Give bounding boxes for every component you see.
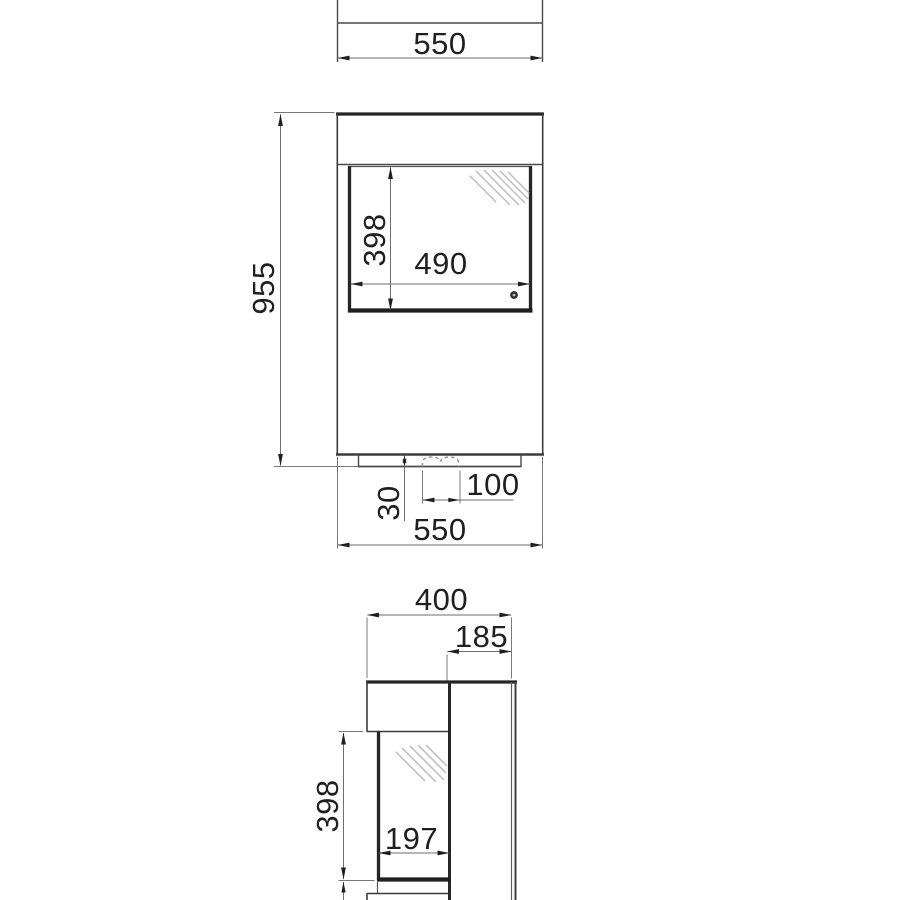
dim-label-rear-depth: 185 bbox=[455, 619, 508, 654]
dimension-recess-width: 100 bbox=[423, 467, 520, 504]
dimension-cutoff-bottom bbox=[341, 882, 345, 900]
door-lock-screw bbox=[510, 291, 518, 299]
recess-arrow-right bbox=[448, 498, 460, 502]
drawing-canvas: 550 bbox=[0, 0, 900, 900]
glass-reflection-hatch bbox=[470, 170, 529, 205]
dimension-overall-height: 955 bbox=[246, 113, 358, 467]
side-glass-door bbox=[377, 732, 451, 881]
dim-label-depth: 400 bbox=[415, 582, 468, 617]
dimension-front-glass-height: 398 bbox=[357, 168, 392, 311]
front-plinth bbox=[358, 455, 522, 467]
dim-label-plinth-height: 30 bbox=[371, 485, 406, 520]
dimension-plinth-height: 30 bbox=[371, 456, 407, 522]
side-base bbox=[367, 882, 449, 900]
front-view bbox=[336, 113, 544, 467]
side-view bbox=[366, 681, 517, 900]
dim-label-recess-width: 100 bbox=[466, 467, 519, 502]
dimension-side-glass-height: 398 bbox=[310, 732, 375, 881]
side-glass-reflection-hatch bbox=[396, 745, 447, 782]
dim-label-top-width: 550 bbox=[413, 26, 466, 61]
cutoff-arrow-up bbox=[341, 882, 345, 893]
cable-recess-hidden-outline bbox=[423, 457, 459, 467]
dimension-top-width: 550 bbox=[338, 26, 542, 61]
dim-label-front-glass-height: 398 bbox=[357, 213, 392, 266]
dim-label-height: 955 bbox=[246, 261, 281, 314]
dimension-rear-depth: 185 bbox=[447, 619, 511, 681]
dim-label-bottom-width: 550 bbox=[413, 512, 466, 547]
dim-label-glass-width: 490 bbox=[414, 246, 467, 281]
dim-label-side-glass-height: 398 bbox=[310, 779, 345, 832]
technical-drawing: 550 bbox=[0, 0, 900, 900]
dim-label-glass-depth: 197 bbox=[385, 821, 438, 856]
dimension-glass-depth: 197 bbox=[379, 821, 449, 856]
